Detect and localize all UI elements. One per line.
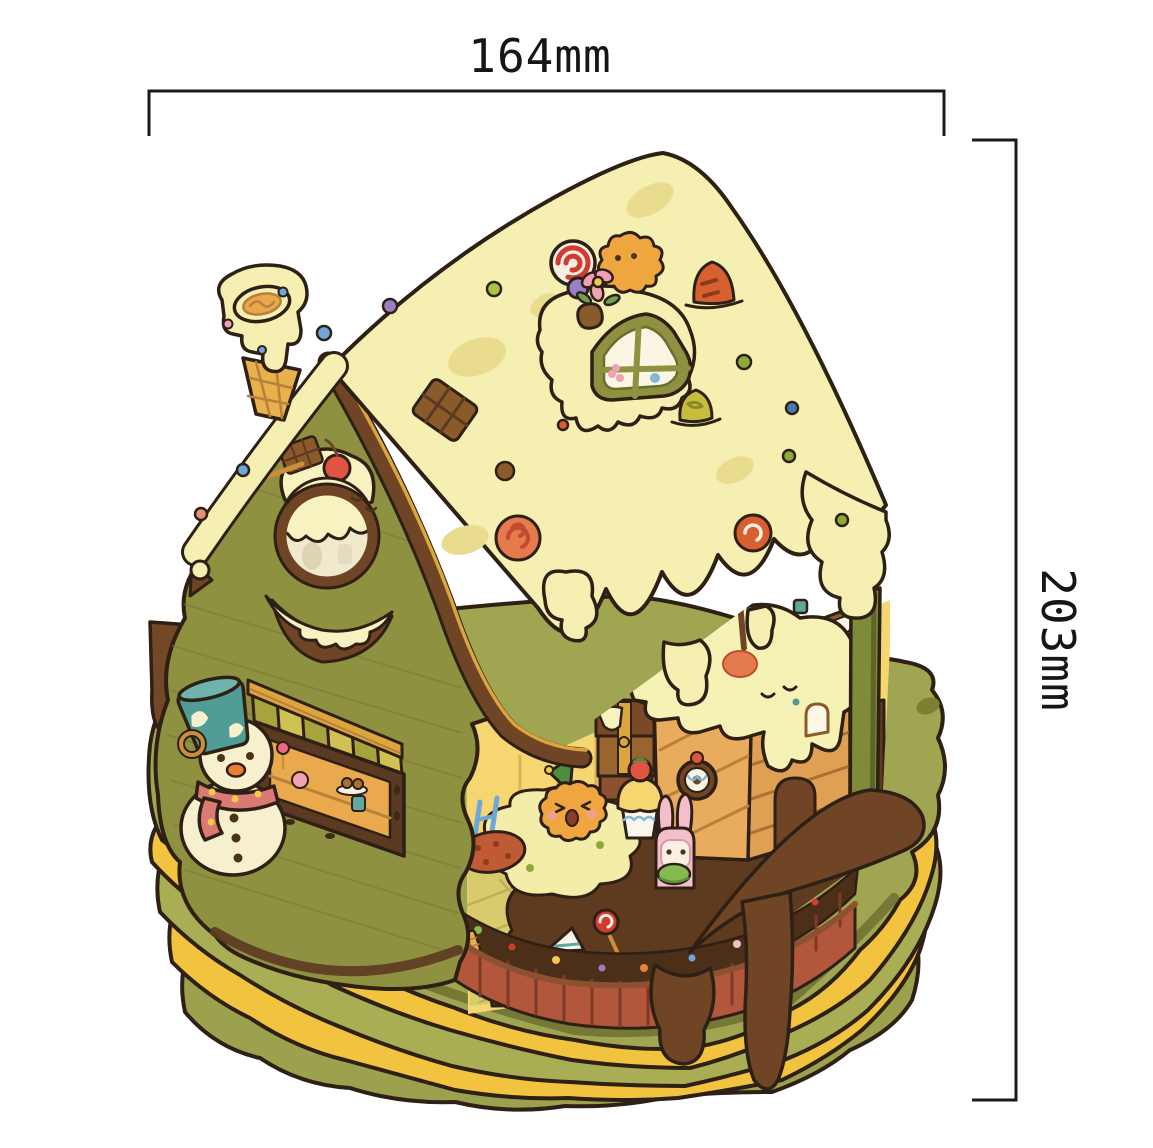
- fluffy-cookie-eye: [615, 255, 621, 261]
- kennel-icing-dot: [793, 699, 800, 706]
- cupcake-dome: [618, 778, 662, 812]
- sprinkle: [737, 355, 751, 369]
- small-lollipop: [594, 910, 618, 934]
- dimension-diagram: 164mm 203mm: [0, 0, 1153, 1148]
- sprinkle: [496, 462, 514, 480]
- kennel-donut-berry: [691, 752, 703, 764]
- dormer-mullion: [635, 320, 639, 396]
- bunny-eye: [666, 849, 671, 854]
- bunny-ear: [677, 794, 691, 832]
- strip-drip: [191, 561, 209, 579]
- sprinkle: [558, 420, 568, 430]
- puddle-sprinkle: [526, 864, 534, 872]
- snowman-nose: [227, 764, 245, 777]
- display-lollipop-head: [277, 742, 289, 754]
- party-hat-pompom: [545, 766, 553, 774]
- display-pink-candy: [292, 772, 308, 788]
- cookie-chunk: [578, 304, 603, 329]
- width-dimension: [149, 91, 944, 136]
- sprinkle: [317, 326, 331, 340]
- snowman-eye: [217, 754, 225, 762]
- height-dimension: [972, 140, 1016, 1100]
- sprinkle: [383, 299, 397, 313]
- cookie-blush: [547, 811, 557, 821]
- kennel-icing-jam: [723, 651, 757, 677]
- height-label: 203mm: [1031, 568, 1085, 711]
- cap-sprinkle: [258, 346, 266, 354]
- illustration-canvas: 164mm 203mm: [0, 0, 1153, 1148]
- display-cookie: [353, 779, 363, 789]
- cake-slice-layer: [556, 944, 578, 946]
- drip-sprinkle: [783, 450, 795, 462]
- drip-sprinkle: [836, 514, 848, 526]
- cinnamon-bun-candy: [496, 516, 540, 560]
- bunny-eye: [680, 849, 685, 854]
- cap-sprinkle: [279, 288, 288, 297]
- width-extent-line: [149, 91, 944, 136]
- height-extent-line: [972, 140, 1016, 1100]
- display-cup: [352, 796, 365, 811]
- kennel-mini-window: [806, 704, 828, 736]
- porthole-faint-item: [302, 542, 322, 570]
- porthole-faint-item: [338, 544, 352, 564]
- strip-sprinkle: [195, 508, 207, 520]
- cupcake-strawberry: [629, 759, 651, 781]
- sprinkle: [786, 402, 798, 414]
- chest-clasp: [619, 737, 629, 747]
- puddle-sprinkle: [596, 841, 604, 849]
- dormer-skylight: [537, 286, 694, 431]
- right-long-drip: [742, 892, 793, 1089]
- cookie-mouth: [566, 810, 578, 826]
- sprinkle: [487, 282, 501, 296]
- strip-sprinkle: [237, 464, 249, 476]
- width-label: 164mm: [468, 29, 611, 83]
- dormer-mullion: [598, 368, 688, 370]
- shelf-teal-cup: [794, 600, 807, 613]
- snowman-eye: [246, 752, 254, 760]
- cookie-blush: [587, 809, 597, 819]
- display-cookie: [342, 778, 352, 788]
- cinnamon-bun-candy-2: [735, 515, 771, 551]
- eave-drip-small: [747, 606, 774, 648]
- fluffy-cookie-eye: [631, 253, 637, 259]
- cap-sprinkle: [224, 320, 233, 329]
